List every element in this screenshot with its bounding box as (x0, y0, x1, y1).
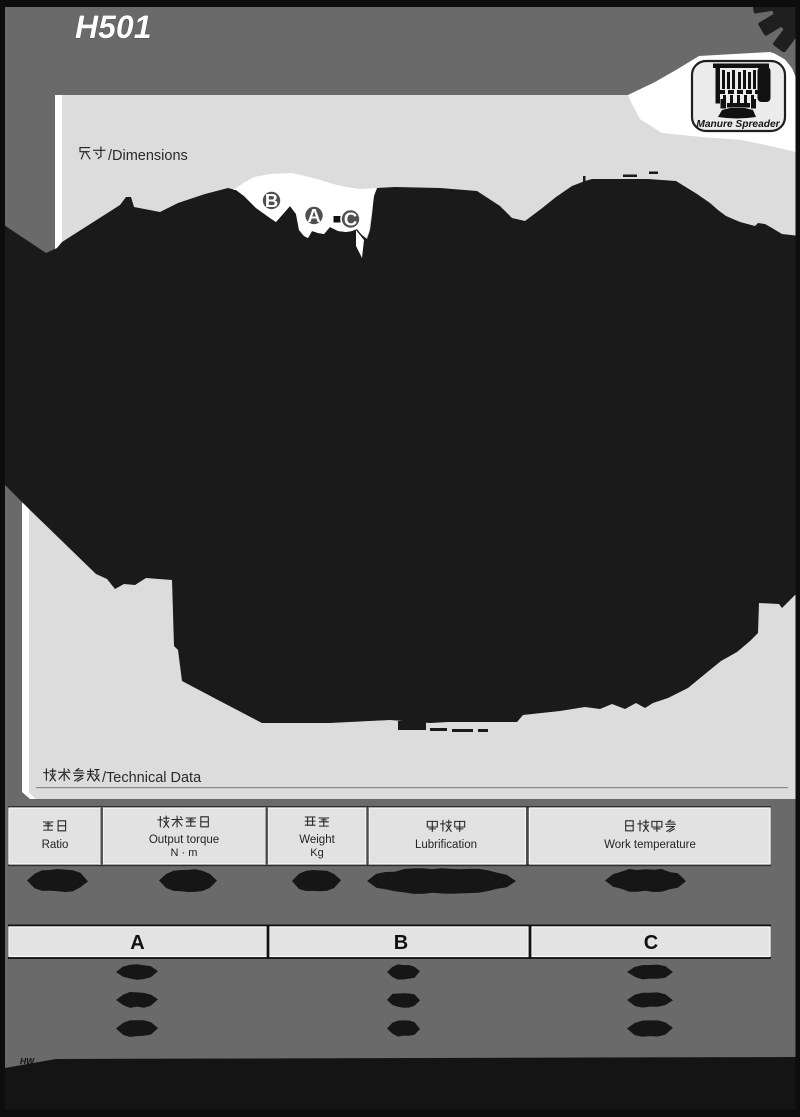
svg-text:Work temperature: Work temperature (604, 839, 696, 851)
svg-text:N · m: N · m (171, 847, 198, 859)
svg-text:/Technical Data: /Technical Data (102, 770, 202, 786)
svg-text:H501: H501 (75, 9, 152, 45)
svg-text:Output torque: Output torque (149, 834, 219, 846)
svg-text:C: C (644, 932, 658, 954)
svg-text:/Dimensions: /Dimensions (108, 148, 188, 164)
svg-text:HW: HW (20, 1056, 35, 1066)
svg-text:Lubrification: Lubrification (415, 839, 477, 851)
svg-text:Kg: Kg (310, 847, 323, 859)
svg-text:Manure Spreader: Manure Spreader (696, 119, 780, 130)
svg-text:A: A (307, 205, 320, 226)
svg-text:Weight: Weight (299, 834, 335, 846)
svg-text:B: B (394, 932, 408, 954)
svg-text:C: C (344, 209, 357, 230)
svg-text:B: B (265, 190, 278, 211)
svg-text:Ratio: Ratio (42, 839, 69, 851)
svg-text:A: A (130, 932, 144, 954)
